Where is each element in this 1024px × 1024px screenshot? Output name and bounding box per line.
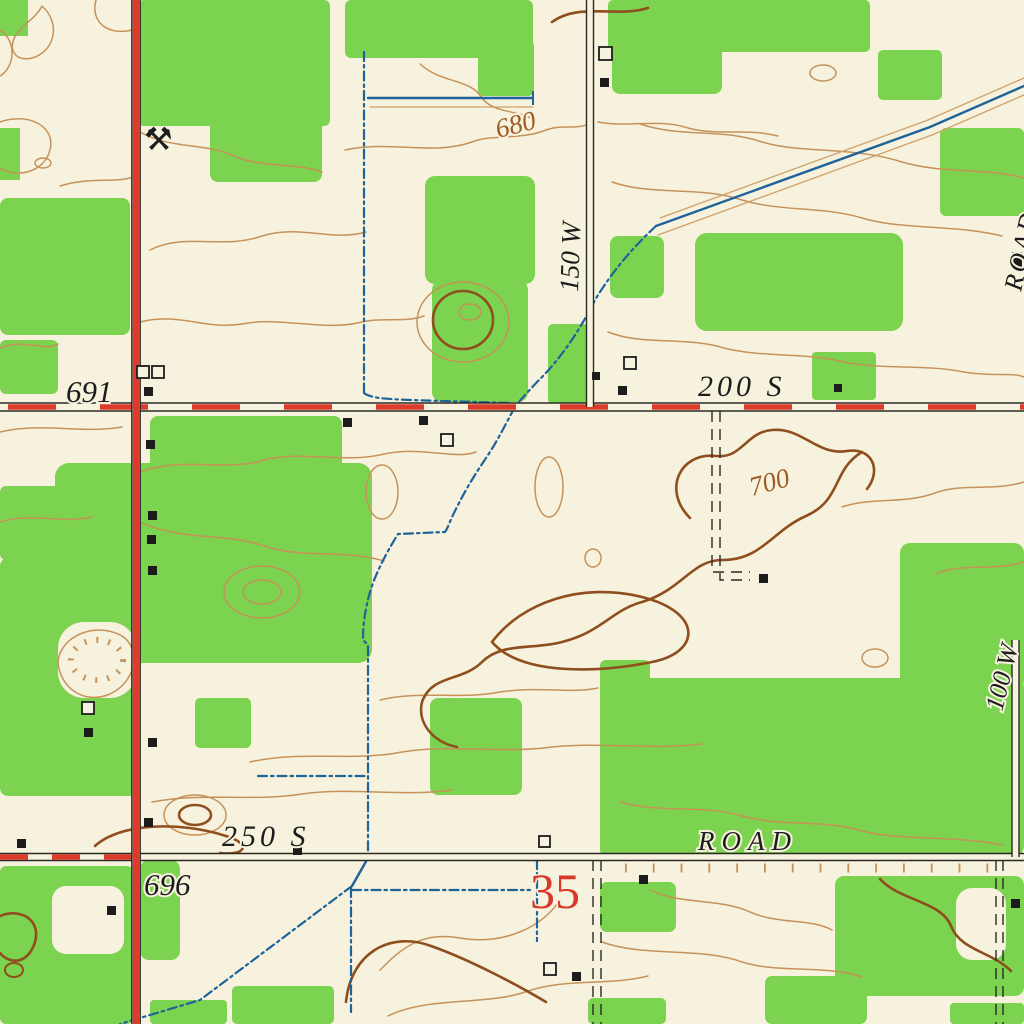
road-name-label-bottom: ROAD bbox=[697, 826, 798, 856]
building bbox=[834, 384, 842, 392]
building bbox=[618, 386, 627, 395]
road-250s-label: 250 S bbox=[222, 820, 310, 853]
building bbox=[107, 906, 116, 915]
building bbox=[84, 728, 93, 737]
section-number-35: 35 bbox=[530, 863, 580, 919]
building bbox=[572, 972, 581, 981]
building bbox=[144, 387, 153, 396]
road-200s-label: 200 S bbox=[698, 370, 786, 403]
building bbox=[592, 372, 600, 380]
building bbox=[639, 875, 648, 884]
building-outline bbox=[624, 357, 636, 369]
building-outline bbox=[544, 963, 556, 975]
topo-map-viewport[interactable]: 691 696 680 700 150 W 200 S 250 S ROAD R… bbox=[0, 0, 1024, 1024]
mine-prospect-icon: ⚒ bbox=[144, 120, 173, 158]
building-outline bbox=[599, 47, 612, 60]
building-outline bbox=[539, 836, 550, 847]
topo-map-canvas: 691 696 680 700 150 W 200 S 250 S ROAD R… bbox=[0, 0, 1024, 1024]
spot-elevation-691-label: 691 bbox=[66, 374, 113, 409]
building-outline bbox=[137, 366, 149, 378]
building-outline bbox=[152, 366, 164, 378]
building bbox=[147, 535, 156, 544]
building bbox=[419, 416, 428, 425]
building bbox=[148, 566, 157, 575]
building-outline bbox=[82, 702, 94, 714]
building-outline bbox=[441, 434, 453, 446]
spot-elevation-696-label: 696 bbox=[144, 867, 191, 902]
building bbox=[148, 511, 157, 520]
building bbox=[343, 418, 352, 427]
building bbox=[600, 78, 609, 87]
road-150w-label: 150 W bbox=[554, 219, 587, 292]
building bbox=[148, 738, 157, 747]
building bbox=[1011, 899, 1020, 908]
building bbox=[759, 574, 768, 583]
building bbox=[17, 839, 26, 848]
building bbox=[146, 440, 155, 449]
building bbox=[144, 818, 153, 827]
